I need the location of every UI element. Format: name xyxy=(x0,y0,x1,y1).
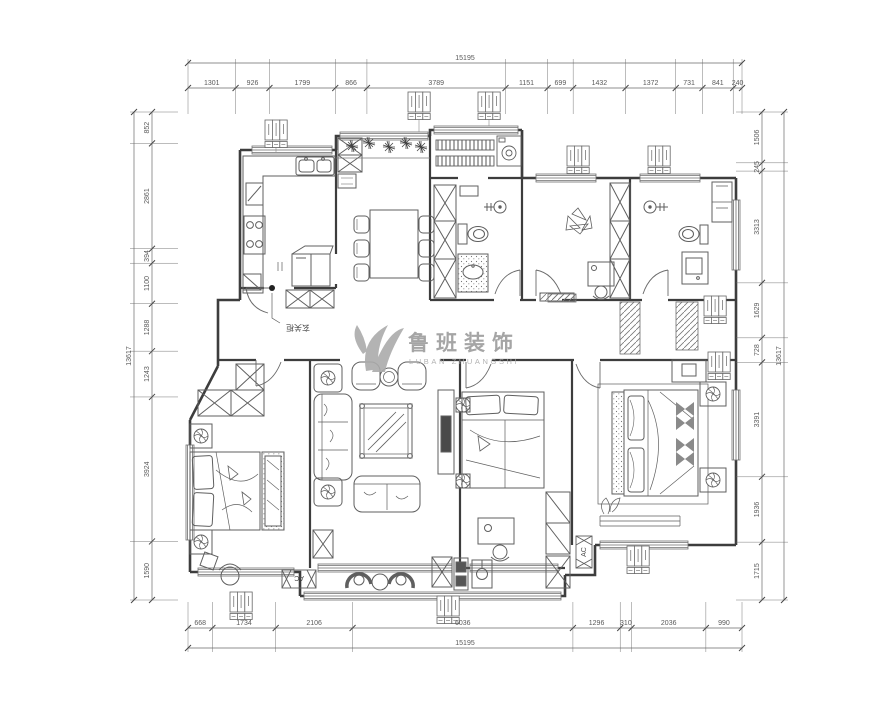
door-pivot-dot xyxy=(269,285,275,291)
svg-text:245: 245 xyxy=(754,161,761,173)
bathroom-1 xyxy=(434,185,506,298)
living-room xyxy=(313,362,470,558)
svg-text:13617: 13617 xyxy=(776,346,783,366)
svg-text:1288: 1288 xyxy=(144,320,151,336)
svg-text:2106: 2106 xyxy=(306,620,322,627)
bathroom-2 xyxy=(644,182,732,284)
svg-text:394: 394 xyxy=(144,250,151,262)
svg-text:990: 990 xyxy=(718,620,730,627)
floor-plan-svg: 玄关柜 xyxy=(0,0,870,703)
bedroom-master xyxy=(598,360,726,526)
watermark-logo-icon xyxy=(355,325,404,372)
watermark-title: 鲁班装饰 xyxy=(408,331,520,355)
svg-text:1100: 1100 xyxy=(144,276,151,291)
svg-text:841: 841 xyxy=(712,80,724,87)
hallway-louvers xyxy=(548,294,698,354)
svg-text:1301: 1301 xyxy=(204,80,220,87)
svg-text:3391: 3391 xyxy=(754,412,761,428)
ac-label-master: AC xyxy=(581,547,588,557)
bedroom-middle xyxy=(462,392,570,588)
svg-text:1151: 1151 xyxy=(519,80,534,87)
bedroom-left xyxy=(190,364,284,585)
svg-text:3313: 3313 xyxy=(754,219,761,235)
svg-text:13617: 13617 xyxy=(126,346,133,366)
svg-text:668: 668 xyxy=(194,620,206,627)
svg-text:3789: 3789 xyxy=(428,80,444,87)
svg-text:310: 310 xyxy=(620,620,632,627)
south-balcony xyxy=(347,557,492,590)
floor-plan-page: 玄关柜 xyxy=(0,0,870,703)
entry-cabinet xyxy=(272,290,334,323)
svg-text:852: 852 xyxy=(144,122,151,134)
dining-room xyxy=(354,210,434,281)
entry-cabinet-label: 玄关柜 xyxy=(286,323,310,333)
svg-text:699: 699 xyxy=(555,80,567,87)
svg-text:15195: 15195 xyxy=(455,55,475,62)
bedroom-top xyxy=(540,183,630,301)
svg-text:1629: 1629 xyxy=(754,302,761,318)
svg-text:728: 728 xyxy=(754,344,761,356)
svg-text:3924: 3924 xyxy=(144,461,151,477)
svg-text:1799: 1799 xyxy=(295,80,311,87)
svg-text:15195: 15195 xyxy=(455,640,475,647)
svg-text:1372: 1372 xyxy=(643,80,659,87)
svg-text:1432: 1432 xyxy=(592,80,608,87)
svg-text:2861: 2861 xyxy=(144,188,151,204)
watermark: 鲁班装饰 LUBAN ZHUANGSHI xyxy=(355,325,520,372)
svg-text:1936: 1936 xyxy=(754,502,761,518)
svg-text:240: 240 xyxy=(732,80,744,87)
svg-text:2036: 2036 xyxy=(661,620,677,627)
svg-text:6036: 6036 xyxy=(455,620,471,627)
watermark-subtitle: LUBAN ZHUANGSHI xyxy=(409,357,519,366)
svg-text:926: 926 xyxy=(247,80,259,87)
svg-text:866: 866 xyxy=(345,80,357,87)
svg-text:1590: 1590 xyxy=(144,563,151,579)
svg-text:1715: 1715 xyxy=(754,563,761,579)
ac-label-balcony: AC xyxy=(294,574,304,581)
svg-text:1734: 1734 xyxy=(236,620,252,627)
svg-text:731: 731 xyxy=(683,80,695,87)
laundry-area xyxy=(436,136,521,166)
kitchen xyxy=(243,156,335,293)
svg-text:1296: 1296 xyxy=(589,620,605,627)
svg-text:1243: 1243 xyxy=(144,366,151,382)
svg-text:1506: 1506 xyxy=(754,130,761,146)
